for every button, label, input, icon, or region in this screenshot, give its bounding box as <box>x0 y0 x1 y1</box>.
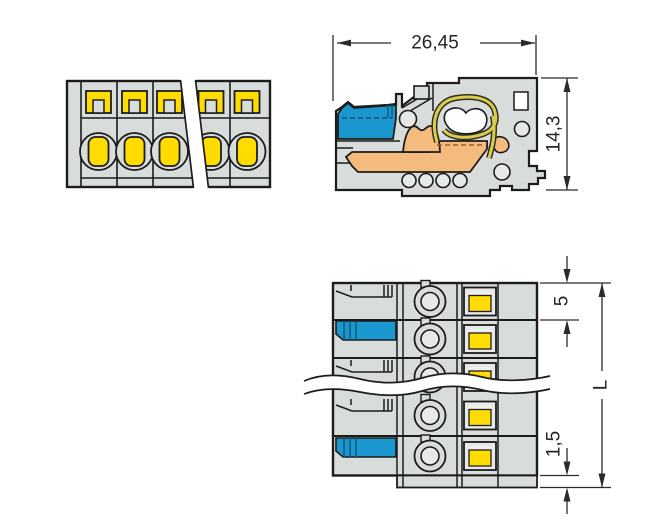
front-view <box>67 80 270 189</box>
lever-row-2-blue <box>336 321 396 340</box>
drawing-svg: 26,45 14,3 <box>0 0 671 532</box>
top-bottom-rib <box>397 476 537 488</box>
window-row-2 <box>464 325 496 353</box>
side-spring-cavity <box>444 108 486 134</box>
window-row-1 <box>464 288 496 316</box>
arrow-down-icon <box>564 176 571 190</box>
dim-height-label: 14,3 <box>544 116 565 153</box>
arrow-right-icon <box>521 40 535 47</box>
technical-drawing-canvas: 26,45 14,3 <box>0 0 671 532</box>
side-section-view <box>336 78 545 196</box>
wire-entry <box>80 133 117 170</box>
side-square-port <box>414 86 429 99</box>
top-view <box>304 281 550 488</box>
dim-offset: 1,5 <box>540 431 579 514</box>
arrow-up-icon <box>564 488 571 502</box>
push-button <box>235 91 260 113</box>
arrow-up-icon <box>564 320 571 334</box>
push-button <box>157 91 182 113</box>
wire-entry <box>151 133 188 170</box>
push-button <box>122 91 147 113</box>
dim-offset-label: 1,5 <box>544 431 565 457</box>
window-row-4 <box>464 402 496 430</box>
dim-width-label: 26,45 <box>411 33 459 54</box>
wire-entry <box>116 133 153 170</box>
arrow-left-icon <box>337 40 351 47</box>
push-button <box>86 91 111 113</box>
arrow-down-icon <box>564 269 571 283</box>
dim-height: 14,3 <box>541 78 578 190</box>
wire-entry <box>229 133 266 170</box>
arrow-up-icon <box>564 78 571 92</box>
dim-pitch-label: 5 <box>552 296 573 307</box>
push-button <box>199 91 224 113</box>
side-right-slot <box>514 92 528 110</box>
arrow-down-icon <box>564 462 571 476</box>
lever-row-5-blue <box>336 438 396 457</box>
dim-length-label: L <box>591 380 612 391</box>
side-lever <box>338 103 396 139</box>
arrow-up-icon <box>599 283 606 297</box>
arrow-down-icon <box>599 474 606 488</box>
dim-pitch: 5 <box>540 256 611 347</box>
window-row-5 <box>464 442 496 470</box>
front-wire-entries <box>80 133 266 170</box>
